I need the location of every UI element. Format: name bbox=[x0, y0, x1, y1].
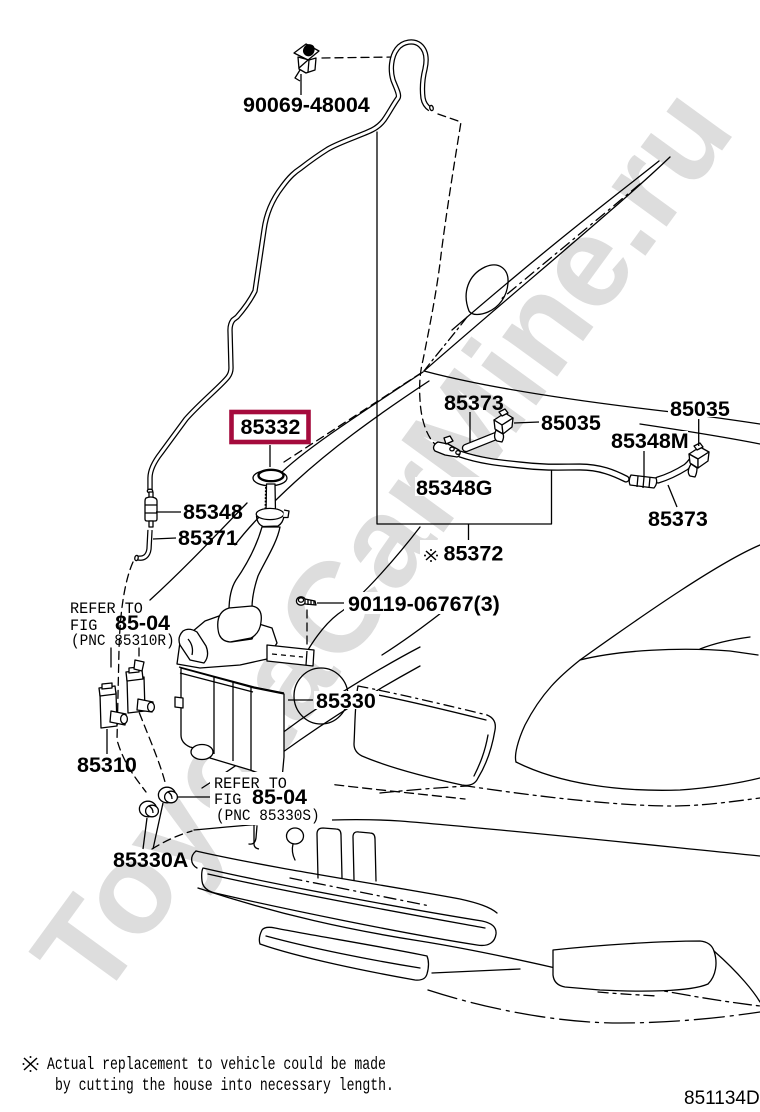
svg-text:85373: 85373 bbox=[444, 391, 504, 415]
svg-text:90069-48004: 90069-48004 bbox=[243, 93, 370, 117]
svg-text:85035: 85035 bbox=[670, 397, 730, 421]
svg-text:85348G: 85348G bbox=[416, 476, 493, 500]
svg-text:90119-06767(3): 90119-06767(3) bbox=[348, 592, 500, 616]
svg-text:85330A: 85330A bbox=[113, 848, 188, 872]
svg-text:85348M: 85348M bbox=[611, 429, 689, 453]
svg-text:(PNC 85330S): (PNC 85330S) bbox=[216, 806, 320, 825]
svg-text:85372: 85372 bbox=[444, 542, 504, 566]
svg-text:85371: 85371 bbox=[178, 526, 238, 550]
svg-text:85310: 85310 bbox=[77, 753, 137, 777]
svg-text:85035: 85035 bbox=[541, 411, 601, 435]
svg-text:Actual replacement to vehicle: Actual replacement to vehicle could be m… bbox=[47, 1054, 386, 1075]
svg-text:85373: 85373 bbox=[648, 507, 708, 531]
svg-text:85330: 85330 bbox=[316, 689, 376, 713]
svg-text:851134D: 851134D bbox=[684, 1088, 760, 1109]
svg-text:by cutting the house into nece: by cutting the house into necessary leng… bbox=[55, 1075, 394, 1096]
svg-text:(PNC 85310R): (PNC 85310R) bbox=[71, 631, 175, 650]
svg-text:85348: 85348 bbox=[183, 500, 243, 524]
svg-text:85332: 85332 bbox=[241, 415, 301, 439]
